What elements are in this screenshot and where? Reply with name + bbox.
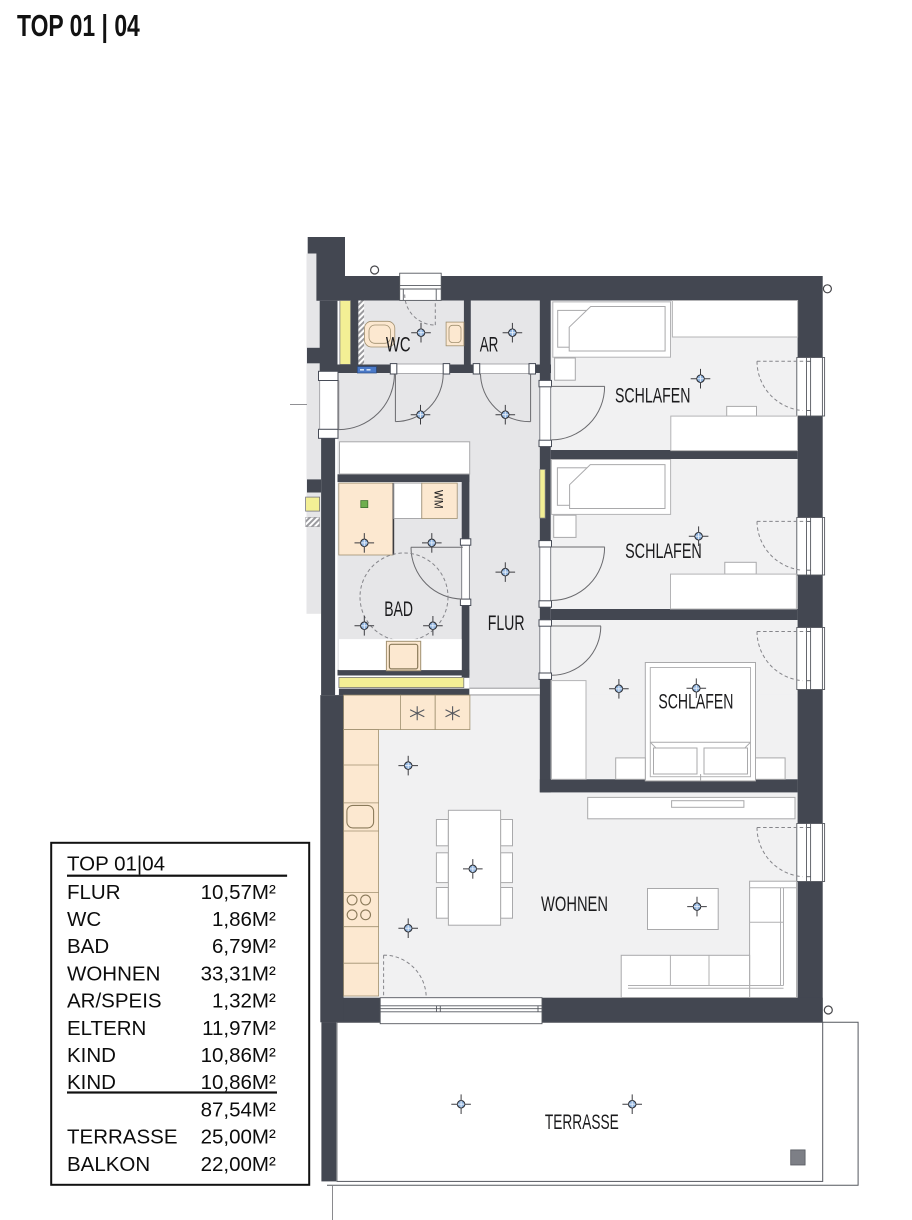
svg-text:BAD: BAD: [384, 598, 413, 621]
svg-text:ELTERN: ELTERN: [67, 1017, 146, 1040]
svg-text:BALKON: BALKON: [67, 1153, 150, 1176]
svg-text:BAD: BAD: [67, 935, 109, 958]
svg-text:TOP 01|04: TOP 01|04: [67, 852, 165, 875]
svg-text:1,32M²: 1,32M²: [212, 990, 276, 1013]
svg-text:FLUR: FLUR: [67, 881, 121, 904]
svg-text:33,31M²: 33,31M²: [201, 962, 276, 985]
svg-text:AR: AR: [480, 334, 499, 357]
svg-text:KIND: KIND: [67, 1044, 116, 1067]
svg-text:SCHLAFEN: SCHLAFEN: [615, 385, 690, 408]
svg-text:6,79M²: 6,79M²: [212, 935, 276, 958]
svg-text:10,57M²: 10,57M²: [201, 881, 276, 904]
svg-text:WM: WM: [432, 490, 444, 509]
svg-text:WC: WC: [67, 908, 101, 931]
svg-text:SCHLAFEN: SCHLAFEN: [658, 691, 733, 714]
svg-text:FLUR: FLUR: [488, 612, 525, 635]
svg-text:10,86M²: 10,86M²: [201, 1044, 276, 1067]
svg-text:1,86M²: 1,86M²: [212, 908, 276, 931]
svg-text:TOP 01 | 04: TOP 01 | 04: [17, 8, 141, 43]
svg-text:10,86M²: 10,86M²: [201, 1071, 276, 1094]
svg-text:KIND: KIND: [67, 1071, 116, 1094]
svg-text:WOHNEN: WOHNEN: [67, 962, 160, 985]
svg-text:SCHLAFEN: SCHLAFEN: [625, 540, 702, 563]
svg-text:11,97M²: 11,97M²: [202, 1017, 276, 1040]
svg-text:25,00M²: 25,00M²: [201, 1126, 276, 1149]
svg-text:WOHNEN: WOHNEN: [541, 893, 608, 916]
svg-text:WC: WC: [386, 334, 411, 357]
svg-text:AR/SPEIS: AR/SPEIS: [67, 990, 162, 1013]
svg-text:TERRASSE: TERRASSE: [545, 1111, 619, 1134]
svg-text:87,54M²: 87,54M²: [201, 1098, 276, 1121]
svg-text:TERRASSE: TERRASSE: [67, 1126, 178, 1149]
svg-text:22,00M²: 22,00M²: [201, 1153, 276, 1176]
